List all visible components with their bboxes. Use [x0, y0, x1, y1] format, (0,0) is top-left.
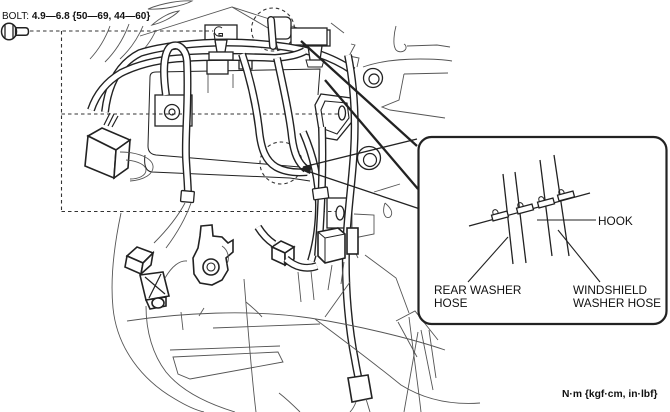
svg-text:WASHER HOSE: WASHER HOSE	[573, 296, 661, 310]
svg-text:HOSE: HOSE	[434, 296, 468, 310]
svg-text:WINDSHIELD: WINDSHIELD	[573, 283, 647, 297]
svg-text:HOOK: HOOK	[598, 214, 633, 228]
svg-text:REAR WASHER: REAR WASHER	[434, 283, 521, 297]
svg-text:N·m {kgf·cm, in·lbf}: N·m {kgf·cm, in·lbf}	[562, 389, 658, 400]
svg-text:BOLT: 4.9—6.8 {50—69, 44—60}: BOLT: 4.9—6.8 {50—69, 44—60}	[2, 11, 150, 22]
